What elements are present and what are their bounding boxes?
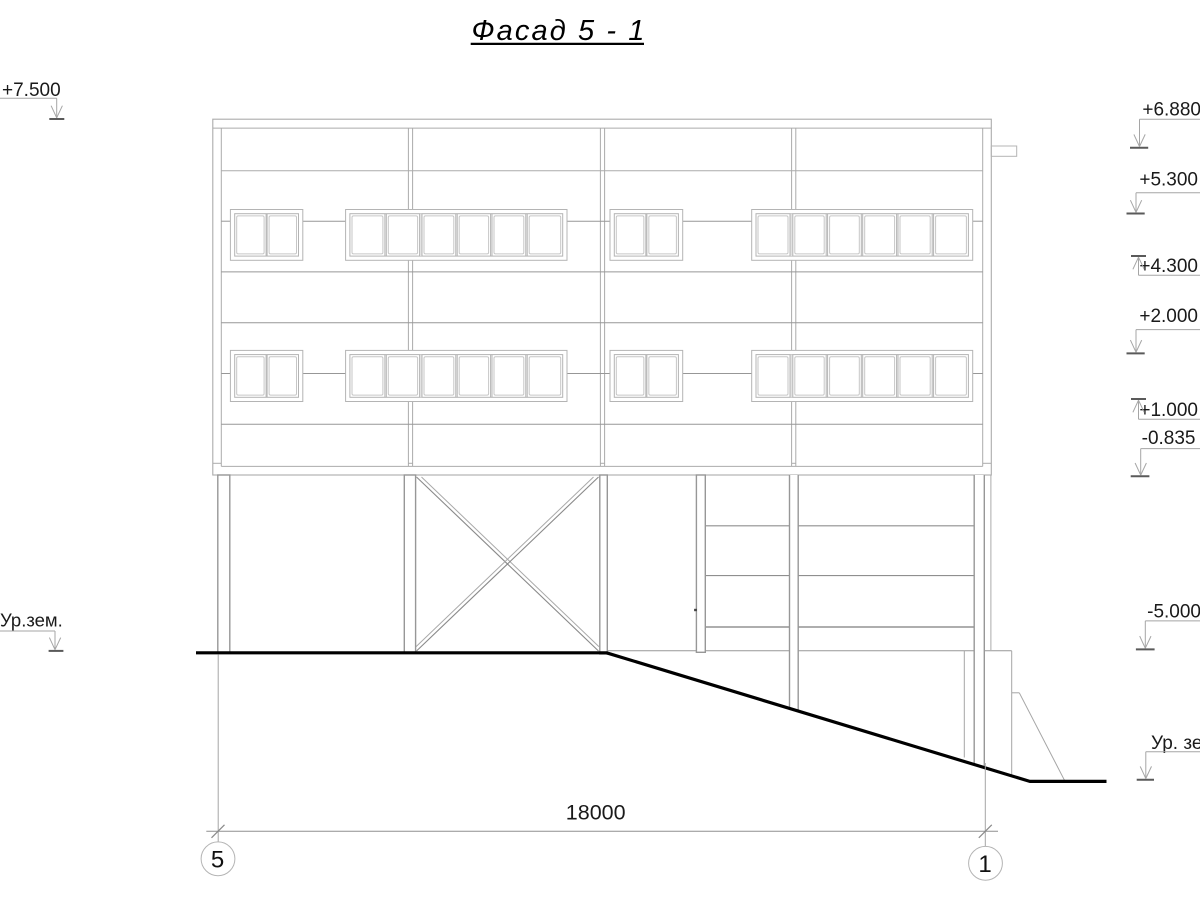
svg-text:-5.000: -5.000 [1147,602,1200,623]
svg-text:+7.500: +7.500 [2,80,61,101]
svg-text:+4.300: +4.300 [1139,256,1198,277]
svg-text:5: 5 [211,846,224,873]
svg-text:18000: 18000 [566,801,626,825]
svg-text:Ур. зем.: Ур. зем. [1151,733,1200,754]
svg-text:Ур.зем.: Ур.зем. [0,609,63,630]
svg-text:Фасад 5 - 1: Фасад 5 - 1 [471,15,646,47]
svg-text:+6.880: +6.880 [1142,100,1200,121]
svg-text:1: 1 [978,851,991,878]
svg-text:+1.000: +1.000 [1139,400,1198,421]
svg-text:+5.300: +5.300 [1139,170,1198,191]
svg-text:+2.000: +2.000 [1139,306,1198,327]
svg-text:-0.835: -0.835 [1142,428,1196,449]
